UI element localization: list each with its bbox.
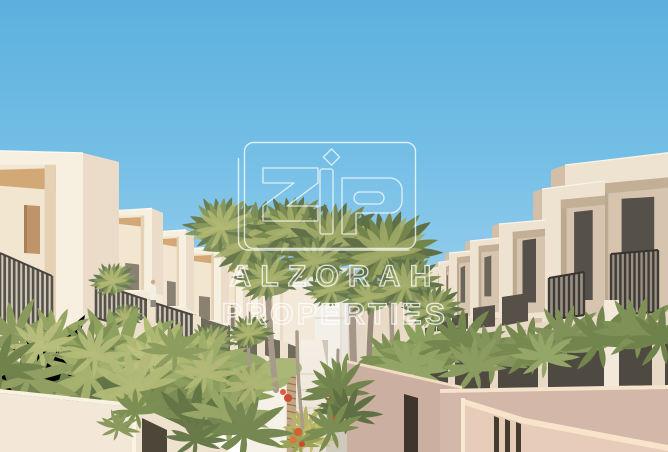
svg-text:ALZORAH: ALZORAH: [229, 260, 440, 293]
svg-text:PROPERTIES: PROPERTIES: [222, 298, 448, 331]
